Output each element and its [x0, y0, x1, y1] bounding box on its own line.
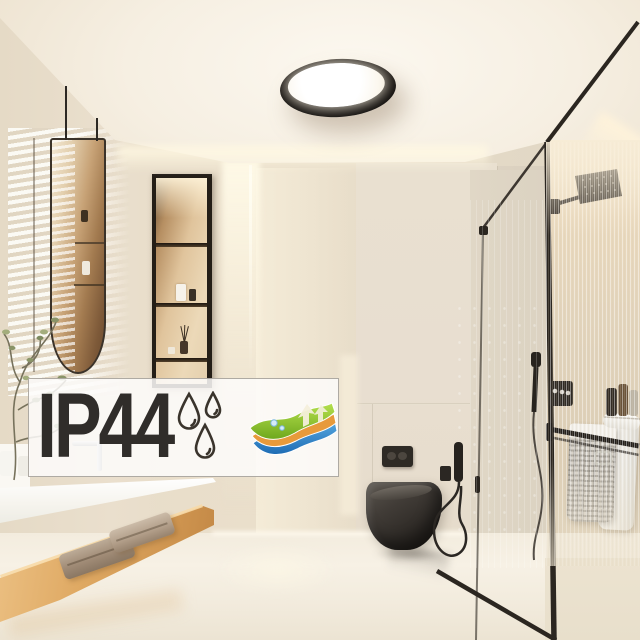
bidet-sprayer — [434, 442, 466, 556]
bathroom-product-photo: IP44 — [0, 0, 640, 640]
water-drops-icon — [176, 391, 228, 469]
water-bead — [280, 426, 285, 431]
ip44-rating-badge: IP44 — [28, 378, 339, 477]
falling-water-fade — [546, 142, 640, 566]
water-bead — [271, 420, 277, 426]
mirror-rods — [66, 86, 97, 141]
ip-rating-text: IP44 — [37, 380, 172, 472]
breathable-layers-icon — [247, 399, 339, 463]
glass-reflection-streaks — [470, 200, 547, 568]
